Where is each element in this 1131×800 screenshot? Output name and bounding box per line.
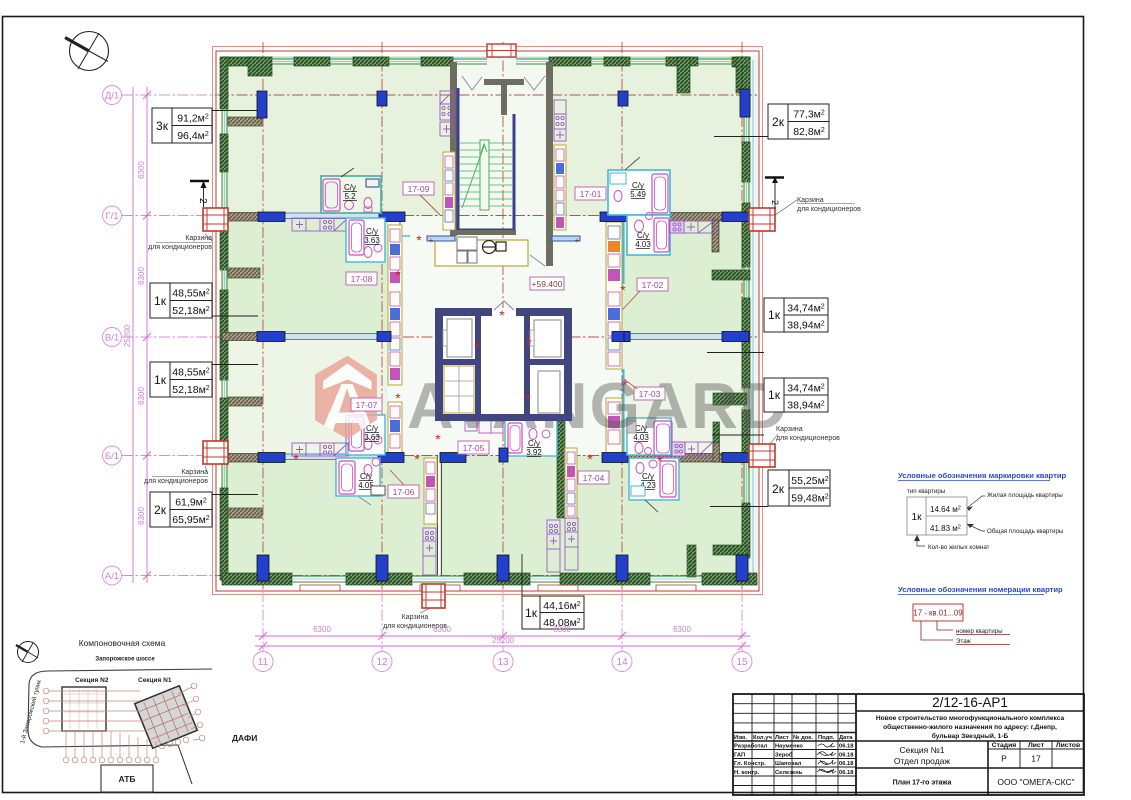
svg-text:55,25м2: 55,25м2 [791,475,829,487]
svg-text:ООО "ОМЕГА-СКС": ООО "ОМЕГА-СКС" [997,777,1074,787]
svg-text:38,94м2: 38,94м2 [787,400,825,412]
svg-text:34,74м2: 34,74м2 [787,383,825,395]
svg-text:Шаповал: Шаповал [775,761,802,767]
svg-text:6300: 6300 [137,387,146,405]
svg-text:Г/1: Г/1 [105,211,118,222]
svg-text:1к: 1к [768,308,781,322]
svg-text:59,48м2: 59,48м2 [791,493,829,505]
svg-text:*: * [395,390,401,406]
svg-text:2к: 2к [772,115,785,129]
svg-text:06.18: 06.18 [839,761,854,767]
svg-text:*: * [435,431,441,447]
svg-text:25200: 25200 [123,324,132,347]
svg-text:*: * [622,377,628,393]
svg-text:Лист: Лист [1028,742,1045,749]
svg-text:06.18: 06.18 [839,753,854,759]
svg-text:52,18м2: 52,18м2 [172,384,210,396]
svg-text:44,16м2: 44,16м2 [543,600,581,612]
svg-text:Секция N1: Секция N1 [138,677,172,684]
svg-text:25200: 25200 [492,636,515,645]
svg-text:77,3м2: 77,3м2 [793,109,825,121]
svg-text:2/12-16-АР1: 2/12-16-АР1 [932,695,1008,710]
svg-text:3.63: 3.63 [364,433,380,442]
svg-text:2к: 2к [154,503,167,517]
svg-text:*: * [525,391,531,407]
svg-text:11: 11 [258,657,269,668]
svg-text:Изм.: Изм. [734,735,747,741]
svg-text:17: 17 [1031,754,1041,764]
svg-text:Подп.: Подп. [818,735,835,741]
svg-text:6300: 6300 [433,625,451,634]
svg-text:для кондиционеров: для кондиционеров [776,435,840,442]
svg-text:А/1: А/1 [105,571,119,582]
svg-text:Секция №1: Секция №1 [899,745,944,755]
svg-text:Общая площадь квартиры: Общая площадь квартиры [987,528,1064,535]
svg-text:3к: 3к [156,119,169,133]
svg-text:4.03: 4.03 [635,240,651,249]
svg-text:Р: Р [1001,754,1007,764]
svg-text:1к: 1к [768,388,781,402]
svg-text:*: * [395,267,401,283]
svg-text:06.18: 06.18 [839,770,854,776]
svg-text:3.92: 3.92 [526,448,542,457]
svg-text:+: + [429,236,434,245]
svg-text:С/у: С/у [344,183,356,192]
svg-text:Гл. Констр.: Гл. Констр. [734,761,766,767]
svg-text:тип квартиры: тип квартиры [907,488,946,495]
svg-text:1к: 1к [525,606,538,620]
svg-text:38,94м2: 38,94м2 [787,320,825,332]
svg-text:17-07: 17-07 [356,400,378,410]
svg-text:12: 12 [376,657,388,668]
svg-text:6300: 6300 [137,267,146,285]
svg-text:Зероб: Зероб [775,752,793,759]
svg-text:общественно-жилого назначения: общественно-жилого назначения по адресу:… [883,723,1057,731]
svg-text:48,55м2: 48,55м2 [172,288,210,300]
svg-text:Карзина: Карзина [402,614,429,621]
svg-text:6300: 6300 [313,625,331,634]
svg-text:61,9м2: 61,9м2 [175,497,207,509]
svg-text:План 17-го этажа: План 17-го этажа [893,780,952,787]
svg-text:Кол-во жилых комнат: Кол-во жилых комнат [928,544,990,551]
svg-text:2: 2 [770,200,780,205]
svg-text:С/у: С/у [360,472,372,481]
svg-text:С/у: С/у [366,227,378,236]
svg-text:06.18: 06.18 [839,744,854,750]
svg-text:5.2: 5.2 [344,192,356,201]
svg-text:14: 14 [616,657,628,668]
svg-text:номер квартиры: номер квартиры [956,628,1003,635]
svg-text:*: * [416,232,422,248]
svg-text:6300: 6300 [137,161,146,179]
svg-text:Карзина: Карзина [776,426,803,433]
svg-text:17 - кв.01...09: 17 - кв.01...09 [913,609,962,618]
svg-text:С/у: С/у [642,472,654,481]
svg-text:6300: 6300 [673,625,691,634]
svg-text:52,18м2: 52,18м2 [172,305,210,317]
svg-text:Науменко: Науменко [775,744,803,750]
svg-text:17-02: 17-02 [642,280,664,290]
svg-text:ДАФИ: ДАФИ [232,733,257,743]
svg-text:Д/1: Д/1 [105,91,119,102]
svg-text:Запорожское шоссе: Запорожское шоссе [95,657,155,663]
svg-text:ГАП: ГАП [734,753,745,759]
svg-text:Н. контр.: Н. контр. [734,770,760,776]
svg-text:Стадия: Стадия [992,742,1017,749]
svg-text:В/1: В/1 [105,333,119,344]
svg-text:Карзина: Карзина [797,197,824,204]
svg-text:*: * [474,339,480,355]
svg-text:+59.400: +59.400 [532,279,563,289]
svg-text:+: + [575,236,580,245]
svg-text:91,2м2: 91,2м2 [177,113,209,125]
svg-text:6300: 6300 [553,625,571,634]
svg-text:17-03: 17-03 [639,389,661,399]
svg-text:82,8м2: 82,8м2 [793,126,825,138]
svg-text:Жилая площадь квартиры: Жилая площадь квартиры [987,492,1063,499]
svg-text:Карзина: Карзина [185,235,212,242]
svg-text:17-06: 17-06 [393,487,415,497]
svg-text:Б/1: Б/1 [105,451,119,462]
svg-text:Секция N2: Секция N2 [75,677,109,684]
svg-text:Компоновочная схема: Компоновочная схема [79,638,166,648]
svg-text:34,74м2: 34,74м2 [787,303,825,315]
svg-text:*: * [657,453,663,469]
svg-text:14.64 м2: 14.64 м2 [930,505,961,514]
svg-text:65,95м2: 65,95м2 [172,514,210,526]
svg-text:*: * [620,282,626,298]
svg-text:С/у: С/у [632,181,644,190]
svg-text:Селезень: Селезень [775,770,803,776]
svg-text:17-09: 17-09 [408,184,430,194]
svg-text:17-05: 17-05 [463,443,485,453]
svg-text:АТБ: АТБ [118,774,135,784]
svg-text:17-01: 17-01 [580,189,602,199]
svg-text:*: * [526,335,532,351]
svg-text:Листов: Листов [1056,742,1080,749]
svg-text:Отдел продаж: Отдел продаж [894,756,951,766]
svg-text:*: * [499,307,505,323]
svg-text:для кондиционеров: для кондиционеров [144,478,208,485]
svg-text:Новое строительство многофункц: Новое строительство многофункционального… [876,715,1065,722]
svg-text:2: 2 [197,198,208,204]
svg-text:2к: 2к [772,482,785,496]
svg-text:1к: 1к [154,294,167,308]
svg-text:96,4м2: 96,4м2 [177,130,209,142]
svg-text:для кондиционеров: для кондиционеров [797,206,861,213]
svg-text:6300: 6300 [137,507,146,525]
svg-text:*: * [293,451,299,467]
svg-text:бульвар Звездный, 1-Б: бульвар Звездный, 1-Б [932,732,1009,740]
svg-text:1к: 1к [154,373,167,387]
svg-text:5.49: 5.49 [630,190,646,199]
svg-text:Дата: Дата [839,735,853,741]
svg-text:48,55м2: 48,55м2 [172,367,210,379]
svg-text:17-08: 17-08 [351,274,373,284]
svg-text:Разработал: Разработал [734,743,768,750]
svg-text:15: 15 [736,657,748,668]
svg-text:*: * [414,451,420,467]
svg-text:17-04: 17-04 [583,473,605,483]
svg-text:Условные обозначения номерации: Условные обозначения номерации квартир [898,585,1063,594]
svg-text:41.83 м2: 41.83 м2 [930,524,961,533]
svg-text:13: 13 [497,657,509,668]
svg-text:С/у: С/у [637,231,649,240]
svg-text:№ док.: № док. [793,735,813,741]
svg-text:для кондиционеров: для кондиционеров [148,244,212,251]
svg-text:1к: 1к [912,512,923,523]
svg-text:Карзина: Карзина [181,469,208,476]
svg-text:Лист: Лист [775,735,789,741]
svg-text:Кол.уч: Кол.уч [753,735,772,741]
svg-text:Этаж: Этаж [956,638,972,645]
svg-text:*: * [587,451,593,467]
svg-text:Условные обозначения маркировк: Условные обозначения маркировки квартир [898,471,1066,480]
svg-text:3.63: 3.63 [364,236,380,245]
